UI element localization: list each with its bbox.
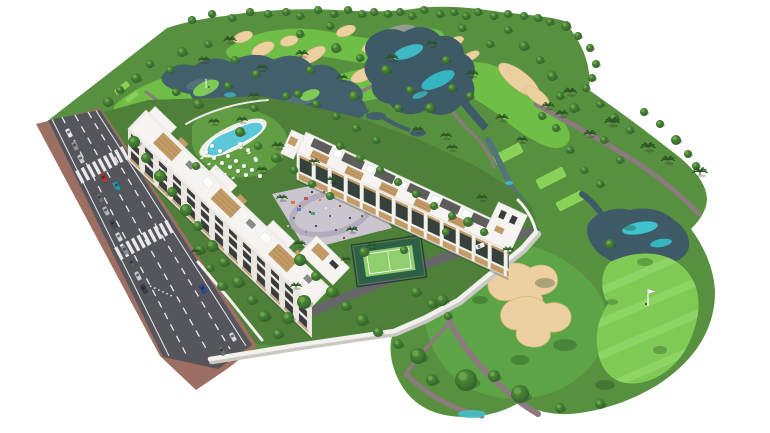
tree [588,74,597,82]
tree [188,16,197,24]
person [305,231,307,233]
tree [344,6,353,14]
tree [474,8,483,16]
tree [671,135,683,145]
aerial-masterplan-render [0,0,770,433]
mow-shadow [624,225,636,231]
tree [692,162,701,170]
mow-shadow [511,355,529,365]
mow-shadow [595,380,615,390]
person [315,225,317,227]
mow-shadow [637,258,653,266]
person [311,191,313,193]
mow-shadow [606,299,618,305]
person [323,191,325,193]
tree [420,6,429,14]
person [299,205,301,207]
person [349,217,351,219]
tree [314,6,323,14]
person [343,237,345,239]
mow-shadow [472,296,488,304]
tree [520,12,529,20]
person [329,215,331,217]
tree [561,21,573,31]
person [335,229,337,231]
person [355,227,357,229]
mow-shadow [535,278,555,288]
tree [656,120,665,128]
tree [358,10,367,18]
tree [370,8,379,16]
tree [574,32,583,40]
person [339,205,341,207]
tree [684,150,693,158]
person [325,207,327,209]
tree [504,10,513,18]
tree [592,60,601,68]
person [319,199,321,201]
person [309,211,311,213]
tree [246,8,255,16]
person [287,225,289,227]
mow-shadow [653,346,667,354]
paddle-tennis-court [351,235,426,286]
tree [534,14,543,22]
tree [208,10,217,18]
mow-shadow [553,339,577,351]
tree [640,108,649,116]
tree [396,8,405,16]
tree [582,84,591,92]
tree [282,8,291,16]
tree [586,44,595,52]
person [293,217,295,219]
person [361,215,363,217]
